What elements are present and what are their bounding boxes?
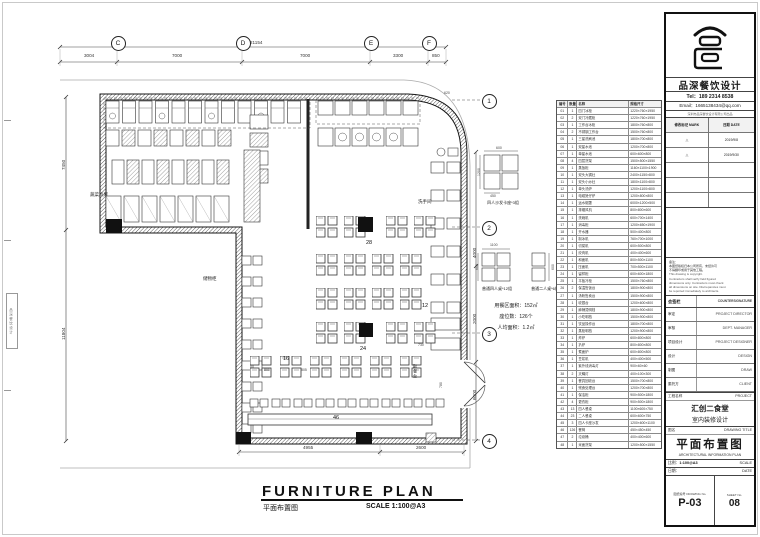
drawing-title-section: 图名 DRAWING TITLE 平面布置图 ARCHITECTURAL INF… xyxy=(666,427,754,460)
schedule-row: 311饮品操作台1800×700×800 xyxy=(557,321,661,328)
schedule-cell: 汤粉售卖台 xyxy=(577,293,629,299)
schedule-row: 382灭蝇灯400×100×300 xyxy=(557,371,661,378)
stats-line: 用餐区面积：152㎡ xyxy=(476,302,556,309)
schedule-cell: 双头小炒灶 xyxy=(577,179,629,185)
dim-label: 3300 xyxy=(393,53,403,58)
schedule-cell: 1 xyxy=(568,293,578,299)
notes-section: 备注：本图纸版权归本公司所有，未经许可不得翻印或用于其他工程。This draw… xyxy=(666,258,754,297)
revision-cell: 2019/9/30 xyxy=(709,148,754,162)
grid-bubble: 4 xyxy=(482,434,497,449)
schedule-cell: 1 xyxy=(568,136,578,142)
dim-label-small: 780 xyxy=(439,382,443,388)
company-logo-section xyxy=(666,14,754,78)
schedule-cell: 31 xyxy=(557,321,568,327)
schedule-cell: 1200×900×800 xyxy=(629,328,661,334)
schedule-cell: 垃圾桶 xyxy=(577,434,629,440)
schedule-cell: 47 xyxy=(557,434,568,440)
schedule-cell: 1 xyxy=(568,122,578,128)
schedule-cell: 1 xyxy=(568,328,578,334)
schedule-cell: 800×800×600 xyxy=(629,207,661,213)
schedule-cell: 13 xyxy=(557,193,568,199)
schedule-cell: 126 xyxy=(568,427,578,433)
schedule-row: 291麻辣烫明档1800×900×800 xyxy=(557,307,661,314)
schedule-row: 221和面机800×500×1100 xyxy=(557,257,661,264)
countersign-role-en: PROJECT DIRECTOR xyxy=(697,308,754,321)
schedule-cell: 米面货架 xyxy=(577,442,629,448)
schedule-cell: 900×500×1800 xyxy=(629,392,661,398)
schedule-cell: 800×800×800 xyxy=(629,342,661,348)
schedule-cell: 1800×1100×800 xyxy=(629,179,661,185)
room-label: 取餐台 xyxy=(412,364,418,379)
schedule-row: 453四人卡座沙发1200×600×1100 xyxy=(557,420,661,427)
total-dim-label: 21154 xyxy=(250,40,262,45)
countersign-role-en: DRAW xyxy=(697,364,754,377)
detail-label: 普通四人桌*12组 xyxy=(468,286,526,292)
schedule-cell: 19 xyxy=(557,236,568,242)
schedule-cell: 和面机 xyxy=(577,257,629,263)
schedule-cell: 洗碗机 xyxy=(577,215,629,221)
schedule-cell: 800×500×1100 xyxy=(629,257,661,263)
schedule-cell: 400×100×300 xyxy=(629,371,661,377)
grid-bubble: F xyxy=(422,36,437,51)
blank-section xyxy=(666,208,754,258)
schedule-row: 481米面货架1200×500×1550 xyxy=(557,442,661,448)
schedule-cell: 1 xyxy=(568,278,578,284)
schedule-cell: 02 xyxy=(557,115,568,121)
project-label-en: PROJECT xyxy=(735,394,752,399)
schedule-cell: 450×450×450 xyxy=(629,427,661,433)
schedule-cell: 1800×700×800 xyxy=(629,321,661,327)
drawing-number-value: P-03 xyxy=(678,497,701,509)
edge-tick xyxy=(4,120,11,121)
drawing-title: 平面布置图 xyxy=(666,436,754,452)
revision-cell xyxy=(709,193,754,207)
seat-count-label: 12 xyxy=(422,303,428,309)
countersign-row: 审定PROJECT DIRECTOR xyxy=(666,308,754,322)
schedule-cell: 900×60×60 xyxy=(629,363,661,369)
dim-label-small: 805 xyxy=(301,368,307,372)
schedule-cell: 不锈钢工作台 xyxy=(577,129,629,135)
grid-bubble: 3 xyxy=(482,327,497,342)
project-name-line2: 室内装修设计 xyxy=(666,415,754,424)
schedule-cell: 600×700×1400 xyxy=(629,215,661,221)
schedule-cell: 饮品操作台 xyxy=(577,321,629,327)
schedule-cell: 电磁煲仔炉 xyxy=(577,193,629,199)
schedule-cell: 三星洗刷池 xyxy=(577,136,629,142)
schedule-cell: 收银台 xyxy=(577,300,629,306)
schedule-cell: 1200×1100×800 xyxy=(629,186,661,192)
schedule-cell: 26 xyxy=(557,285,568,291)
schedule-cell: 2 xyxy=(568,129,578,135)
footer-scale: SCALE 1:100@A3 xyxy=(366,503,425,510)
schedule-cell: 1 xyxy=(568,193,578,199)
schedule-cell: 3 xyxy=(568,420,578,426)
schedule-cell: 单星水池 xyxy=(577,151,629,157)
schedule-cell: 23 xyxy=(557,264,568,270)
schedule-cell: 1 xyxy=(568,385,578,391)
dim-label: 3004 xyxy=(84,53,94,58)
schedule-row: 131电磁煲仔炉1200×800×800 xyxy=(557,193,661,200)
countersign-role-en: CLIENT xyxy=(697,378,754,391)
schedule-cell: 2 xyxy=(568,285,578,291)
schedule-cell: 1 xyxy=(568,144,578,150)
schedule-cell: 06 xyxy=(557,144,568,150)
schedule-cell: 1200×500×1550 xyxy=(629,442,661,448)
schedule-cell: 1 xyxy=(568,392,578,398)
schedule-cell: 麻辣烫明档 xyxy=(577,307,629,313)
drawing-label-cn: 图名 xyxy=(668,428,675,433)
schedule-cell: 1 xyxy=(568,207,578,213)
schedule-row: 011四门冰柜1220×760×1950 xyxy=(557,108,661,115)
schedule-header-cell: 数量 xyxy=(568,101,578,107)
countersign-label-en: COUNTERSIGNATURE xyxy=(697,296,754,307)
schedule-cell: 1 xyxy=(568,179,578,185)
schedule-cell: 39 xyxy=(557,378,568,384)
countersign-role-en: DEPT. MANAGER xyxy=(697,322,754,335)
revision-row: △2019/9/8 xyxy=(666,133,754,148)
schedule-cell: 2 xyxy=(568,115,578,121)
schedule-cell: 单头汤炉 xyxy=(577,186,629,192)
schedule-cell: 1 xyxy=(568,250,578,256)
schedule-cell: 1200×600×800 xyxy=(629,300,661,306)
schedule-cell: 1 xyxy=(568,236,578,242)
detail-dim: 450 xyxy=(490,194,496,198)
footer-title: FURNITURE PLAN xyxy=(262,483,436,500)
schedule-cell: 4 xyxy=(568,158,578,164)
schedule-cell: 1220×760×1950 xyxy=(629,108,661,114)
detail-dim: 1200 xyxy=(477,168,481,176)
edge-tick xyxy=(4,390,11,391)
schedule-row: 181开水器500×400×800 xyxy=(557,229,661,236)
schedule-cell: 切菜机 xyxy=(577,243,629,249)
schedule-cell: 蒸饭柜 xyxy=(577,165,629,171)
binding-mark-text: 品深餐饮设计 xyxy=(10,308,15,335)
schedule-cell: 1 xyxy=(568,321,578,327)
schedule-row: 111双头小炒灶1800×1100×800 xyxy=(557,179,661,186)
schedule-row: 424更衣柜900×500×1800 xyxy=(557,399,661,406)
detail-label: 四人沙发卡座*3组 xyxy=(472,200,534,206)
dim-label-vertical: 11804 xyxy=(61,328,66,340)
schedule-row: 281收银台1200×600×800 xyxy=(557,300,661,307)
schedule-cell: 更衣柜 xyxy=(577,399,629,405)
schedule-cell: 400×400×600 xyxy=(629,250,661,256)
schedule-cell: 1200×800×800 xyxy=(629,193,661,199)
revision-cell: △ xyxy=(666,148,709,162)
schedule-cell: 32 xyxy=(557,328,568,334)
schedule-cell: 03 xyxy=(557,122,568,128)
schedule-cell: 38 xyxy=(557,371,568,377)
sheet-number-cell: SHEET No. 08 xyxy=(715,476,754,525)
stats-line: 座位数：126个 xyxy=(476,313,556,320)
schedule-cell: 炸炉 xyxy=(577,335,629,341)
schedule-row: 411保洁柜900×500×1800 xyxy=(557,392,661,399)
schedule-cell: 1 xyxy=(568,151,578,157)
company-logo-icon xyxy=(689,19,731,73)
binding-mark-box: 品深餐饮设计 xyxy=(6,293,18,349)
schedule-cell: 双星水池 xyxy=(577,144,629,150)
schedule-cell: 残食处理台 xyxy=(577,385,629,391)
countersign-row: 委托方CLIENT xyxy=(666,378,754,392)
schedule-row: 351煮面炉600×800×800 xyxy=(557,349,661,356)
drawing-sheet: 3004700070003300850211544955260074501180… xyxy=(0,0,760,537)
schedule-cell: 600×800×800 xyxy=(629,335,661,341)
seat-count-label: 24 xyxy=(360,346,366,352)
grid-bubble: 1 xyxy=(482,94,497,109)
schedule-cell: 保洁柜 xyxy=(577,392,629,398)
room-label: 洗手间 xyxy=(418,199,432,205)
schedule-row: 211绞肉机400×400×600 xyxy=(557,250,661,257)
schedule-cell: 1 xyxy=(568,363,578,369)
schedule-cell: 1800×900×800 xyxy=(629,285,661,291)
schedule-cell: 餐椅 xyxy=(577,427,629,433)
schedule-row: 084四层货架1500×500×1550 xyxy=(557,158,661,165)
drawing-label-en: DRAWING TITLE xyxy=(724,428,752,433)
schedule-row: 071单星水池600×600×800 xyxy=(557,151,661,158)
schedule-cell: 1 xyxy=(568,200,578,206)
scale-label-en: SCALE xyxy=(740,461,752,466)
grid-bubble: 2 xyxy=(482,221,497,236)
schedule-cell: 1100×600×750 xyxy=(629,406,661,412)
date-row: 日期： DATE xyxy=(666,468,754,476)
room-label: 蔬菜冷库 xyxy=(90,192,108,198)
schedule-cell: 600×600×800 xyxy=(629,151,661,157)
schedule-cell: 1 xyxy=(568,342,578,348)
schedule-cell: 13 xyxy=(568,406,578,412)
revision-cell xyxy=(709,178,754,192)
countersign-role-cn: 审核 xyxy=(666,322,697,335)
schedule-cell: 1 xyxy=(568,335,578,341)
sheet-number-value: 08 xyxy=(729,498,740,509)
schedule-cell: 30 xyxy=(557,314,568,320)
schedule-cell: 600×800×800 xyxy=(629,349,661,355)
schedule-cell: 1200×600×1100 xyxy=(629,420,661,426)
revision-cell xyxy=(666,163,709,177)
countersign-label-cn: 会签栏 xyxy=(666,296,697,307)
schedule-cell: 1 xyxy=(568,271,578,277)
detail-dim: 1100 xyxy=(490,243,498,247)
countersign-row: 项目设计PROJECT DESIGNER xyxy=(666,336,754,350)
company-tel: Tel：189 2314 8538 xyxy=(666,92,754,102)
schedule-cell: 15 xyxy=(557,207,568,213)
project-label-cn: 工程名称 xyxy=(668,394,682,399)
schedule-cell: 蒸柜明档 xyxy=(577,328,629,334)
schedule-row: 031工作台冰柜1800×760×800 xyxy=(557,122,661,129)
schedule-cell: 平板冷柜 xyxy=(577,278,629,284)
schedule-cell: 压面机 xyxy=(577,264,629,270)
schedule-cell: 760×700×1000 xyxy=(629,236,661,242)
scale-label: 比例： xyxy=(668,461,679,465)
schedule-cell: 21 xyxy=(557,250,568,256)
schedule-row: 321蒸柜明档1200×900×800 xyxy=(557,328,661,335)
schedule-cell: 08 xyxy=(557,158,568,164)
countersign-row: 审核DEPT. MANAGER xyxy=(666,322,754,336)
schedule-row: 241留样柜600×600×1800 xyxy=(557,271,661,278)
schedule-row: 151排烟风机800×800×600 xyxy=(557,207,661,214)
sheet-number-section: 图纸编号 DRAWING No. P-03 SHEET No. 08 xyxy=(666,476,754,525)
schedule-row: 201切菜机600×500×800 xyxy=(557,243,661,250)
schedule-row: 4423二人餐桌600×600×750 xyxy=(557,413,661,420)
schedule-cell: 1 xyxy=(568,222,578,228)
scale-row: 比例：1:100@A3 SCALE xyxy=(666,460,754,468)
dim-label-vertical: 6000 xyxy=(472,390,477,400)
schedule-row: 091蒸饭柜1160×1100×1900 xyxy=(557,165,661,172)
schedule-row: 331炸炉600×800×800 xyxy=(557,335,661,342)
schedule-cell: 1 xyxy=(568,243,578,249)
schedule-cell: 42 xyxy=(557,399,568,405)
schedule-cell: 500×400×800 xyxy=(629,229,661,235)
dim-label: 2600 xyxy=(416,445,426,450)
schedule-header-cell: 名称 xyxy=(577,101,629,107)
schedule-cell: 1 xyxy=(568,349,578,355)
countersign-role-cn: 项目设计 xyxy=(666,336,697,349)
dim-label: 850 xyxy=(432,53,440,58)
countersign-role-en: DESIGN xyxy=(697,350,754,363)
schedule-cell: 豆浆机 xyxy=(577,356,629,362)
schedule-cell: 1800×700×800 xyxy=(629,136,661,142)
schedule-cell: 1 xyxy=(568,229,578,235)
schedule-cell: 45 xyxy=(557,420,568,426)
schedule-cell: 1 xyxy=(568,186,578,192)
schedule-cell: 1 xyxy=(568,264,578,270)
schedule-cell: 小吃明档 xyxy=(577,314,629,320)
schedule-row: 4313四人餐桌1100×600×750 xyxy=(557,406,661,413)
project-name-line1: 汇创二食堂 xyxy=(666,403,754,414)
schedule-cell: 43 xyxy=(557,406,568,412)
schedule-row: 301小吃明档1500×900×800 xyxy=(557,314,661,321)
dim-label-vertical: 7450 xyxy=(61,160,66,170)
revision-cell xyxy=(666,178,709,192)
schedule-row: 141运水烟罩6000×1200×500 xyxy=(557,200,661,207)
drawing-number-label: 图纸编号 DRAWING No. xyxy=(674,492,707,496)
schedule-cell: 10 xyxy=(557,172,568,178)
schedule-cell: 1 xyxy=(568,300,578,306)
dim-label: 7000 xyxy=(172,53,182,58)
scale-value: 1:100@A3 xyxy=(679,461,697,465)
note-line-en: be reported immediately to architects. xyxy=(669,289,751,293)
schedule-cell: 17 xyxy=(557,222,568,228)
date-label: 日期： xyxy=(668,469,679,474)
footer-title-underline xyxy=(261,499,463,501)
schedule-cell: 37 xyxy=(557,363,568,369)
schedule-cell: 1160×1100×1900 xyxy=(629,165,661,171)
schedule-cell: 保温售饭台 xyxy=(577,285,629,291)
schedule-cell: 工作台冰柜 xyxy=(577,122,629,128)
schedule-row: 271汤粉售卖台1500×900×800 xyxy=(557,293,661,300)
schedule-cell: 23 xyxy=(568,413,578,419)
schedule-cell: 29 xyxy=(557,307,568,313)
schedule-cell: 双头大锅灶 xyxy=(577,172,629,178)
schedule-cell: 700×500×1100 xyxy=(629,264,661,270)
schedule-cell: 4 xyxy=(568,399,578,405)
schedule-cell: 1 xyxy=(568,172,578,178)
schedule-row: 022双门冷藏柜1220×760×1950 xyxy=(557,115,661,122)
schedule-cell: 1500×760×800 xyxy=(629,278,661,284)
schedule-cell: 1800×900×800 xyxy=(629,307,661,313)
dim-label: 4955 xyxy=(303,445,313,450)
schedule-row: 161洗碗机600×700×1400 xyxy=(557,215,661,222)
schedule-row: 231压面机700×500×1100 xyxy=(557,264,661,271)
schedule-cell: 40 xyxy=(557,385,568,391)
revision-header-cell: 日期 DATE xyxy=(709,118,754,132)
schedule-row: 171消毒柜1200×650×1900 xyxy=(557,222,661,229)
schedule-row: 361豆浆机400×400×500 xyxy=(557,356,661,363)
schedule-cell: 1500×900×800 xyxy=(629,293,661,299)
grid-bubble: D xyxy=(236,36,251,51)
schedule-row: 101双头大锅灶2400×1150×800 xyxy=(557,172,661,179)
countersign-role-cn: 委托方 xyxy=(666,378,697,391)
schedule-cell: 04 xyxy=(557,129,568,135)
revision-header-cell: 修改标记 MARK xyxy=(666,118,709,132)
schedule-cell: 1200×700×800 xyxy=(629,144,661,150)
seat-count-label: 28 xyxy=(366,240,372,246)
schedule-cell: 36 xyxy=(557,356,568,362)
schedule-cell: 1200×700×800 xyxy=(629,385,661,391)
schedule-row: 46126餐椅450×450×450 xyxy=(557,427,661,434)
dim-label-small: 800 xyxy=(264,368,270,372)
revision-table: 修改标记 MARK日期 DATE△2019/9/8△2019/9/30 xyxy=(666,118,754,208)
schedule-cell: 05 xyxy=(557,136,568,142)
schedule-row: 262保温售饭台1800×900×800 xyxy=(557,285,661,292)
dim-label-vertical: 4000 xyxy=(472,248,477,258)
schedule-cell: 27 xyxy=(557,293,568,299)
schedule-cell: 灭蝇灯 xyxy=(577,371,629,377)
schedule-cell: 1 xyxy=(568,307,578,313)
schedule-row: 191制冰机760×700×1000 xyxy=(557,236,661,243)
schedule-cell: 1500×700×800 xyxy=(629,378,661,384)
schedule-cell: 07 xyxy=(557,151,568,157)
schedule-cell: 33 xyxy=(557,335,568,341)
dim-label-small: 620 xyxy=(444,91,450,95)
schedule-cell: 留样柜 xyxy=(577,271,629,277)
schedule-cell: 2 xyxy=(568,371,578,377)
schedule-cell: 绞肉机 xyxy=(577,250,629,256)
schedule-cell: 开水器 xyxy=(577,229,629,235)
schedule-cell: 四门冰柜 xyxy=(577,108,629,114)
title-block: 品深餐饮设计 Tel：189 2314 8538 Email：166513843… xyxy=(664,12,756,527)
schedule-row: 472垃圾桶400×400×600 xyxy=(557,434,661,441)
schedule-cell: 48 xyxy=(557,442,568,448)
detail-dim: 600 xyxy=(551,264,555,270)
revision-row: △2019/9/30 xyxy=(666,148,754,163)
countersign-row: 设计DESIGN xyxy=(666,350,754,364)
schedule-cell: 1200×650×1900 xyxy=(629,222,661,228)
schedule-cell: 四人卡座沙发 xyxy=(577,420,629,426)
schedule-cell: 煮面炉 xyxy=(577,349,629,355)
schedule-cell: 14 xyxy=(557,200,568,206)
schedule-cell: 1220×760×1950 xyxy=(629,115,661,121)
revision-cell xyxy=(666,193,709,207)
countersign-role-cn: 制图 xyxy=(666,364,697,377)
schedule-cell: 12 xyxy=(557,186,568,192)
company-name: 品深餐饮设计 xyxy=(666,78,754,92)
revision-cell: 2019/9/8 xyxy=(709,133,754,147)
schedule-row: 042不锈钢工作台1500×760×800 xyxy=(557,129,661,136)
schedule-cell: 二人餐桌 xyxy=(577,413,629,419)
schedule-cell: 11 xyxy=(557,179,568,185)
schedule-cell: 09 xyxy=(557,165,568,171)
schedule-cell: 16 xyxy=(557,215,568,221)
schedule-row: 341扒炉800×800×800 xyxy=(557,342,661,349)
countersign-role-cn: 设计 xyxy=(666,350,697,363)
revision-cell: △ xyxy=(666,133,709,147)
revision-row xyxy=(666,178,754,193)
schedule-cell: 1 xyxy=(568,378,578,384)
drawing-number-cell: 图纸编号 DRAWING No. P-03 xyxy=(666,476,715,525)
schedule-row: 391餐具回收台1500×700×800 xyxy=(557,378,661,385)
schedule-cell: 25 xyxy=(557,278,568,284)
countersign-role-en: PROJECT DESIGNER xyxy=(697,336,754,349)
countersign-role-cn: 审定 xyxy=(666,308,697,321)
